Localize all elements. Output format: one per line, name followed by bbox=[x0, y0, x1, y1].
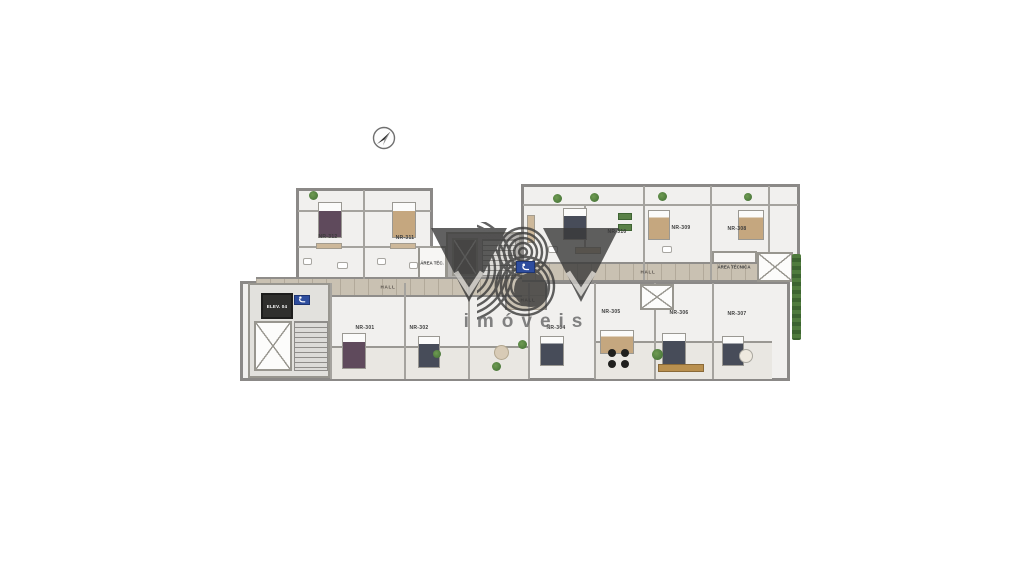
vegetation-strip bbox=[792, 254, 801, 340]
right-wing-divider-1 bbox=[643, 186, 645, 280]
bath-fixture bbox=[303, 258, 312, 265]
bath-fixture bbox=[662, 246, 672, 253]
patio-chair bbox=[608, 360, 616, 368]
brand-watermark-text: imóveis bbox=[464, 311, 591, 333]
unit-label: NR-311 bbox=[396, 235, 415, 241]
left-wing-unit-divider bbox=[363, 190, 365, 279]
dining-chairs bbox=[618, 213, 632, 220]
plant-icon bbox=[433, 350, 441, 358]
patio-chair bbox=[608, 349, 616, 357]
bottom-divider-7 bbox=[712, 283, 714, 379]
plant-icon bbox=[553, 194, 562, 203]
hall-label: HALL bbox=[640, 270, 655, 275]
plant-icon bbox=[590, 193, 599, 202]
bed bbox=[318, 202, 342, 238]
bottom-divider-2 bbox=[404, 283, 406, 379]
bath-fixture bbox=[337, 262, 348, 269]
elevator-04-label: ELEV. 04 bbox=[267, 304, 287, 309]
accessibility-icon bbox=[294, 295, 310, 305]
dresser bbox=[316, 243, 342, 249]
accessibility-icon bbox=[516, 261, 535, 273]
right-wing-divider-2 bbox=[710, 186, 712, 280]
unit-label: NR-306 bbox=[669, 310, 688, 316]
plant-icon bbox=[652, 349, 663, 360]
plant-icon bbox=[658, 192, 667, 201]
area-tecnica-label: ÁREA TÉCNICA bbox=[716, 264, 752, 270]
unit-label: NR-312 bbox=[318, 234, 337, 240]
round-table bbox=[739, 349, 753, 363]
bed bbox=[392, 202, 416, 238]
dresser bbox=[390, 243, 416, 249]
round-rug bbox=[494, 345, 509, 360]
wood-deck bbox=[658, 364, 704, 372]
elevator-04-box: ELEV. 04 bbox=[261, 293, 293, 319]
compass-icon bbox=[371, 125, 397, 151]
mid-elevator-shaft bbox=[640, 284, 674, 310]
bath-fixture bbox=[409, 262, 418, 269]
bed bbox=[738, 210, 764, 240]
floorplan-image: ELEV. 04 NR-312 NR- bbox=[0, 0, 1024, 569]
unit-label: NR-302 bbox=[409, 325, 428, 331]
unit-label: NR-308 bbox=[727, 226, 746, 232]
plant-icon bbox=[744, 193, 752, 201]
patio-chair bbox=[621, 349, 629, 357]
plant-icon bbox=[309, 191, 318, 200]
unit-label: NR-301 bbox=[355, 325, 374, 331]
bottom-divider-1 bbox=[330, 283, 332, 379]
hall-label: HALL bbox=[380, 285, 395, 290]
plant-icon bbox=[518, 340, 527, 349]
plant-icon bbox=[492, 362, 501, 371]
bed bbox=[600, 330, 634, 354]
bed bbox=[540, 336, 564, 366]
unit-label: NR-307 bbox=[727, 311, 746, 317]
core-stairs bbox=[294, 321, 328, 371]
right-elevator-shaft bbox=[757, 252, 793, 282]
core-elevator-shaft bbox=[254, 321, 292, 371]
unit-label: NR-309 bbox=[671, 225, 690, 231]
bed bbox=[662, 333, 686, 365]
bed bbox=[648, 210, 670, 240]
bath-fixture bbox=[377, 258, 386, 265]
right-wing-balcony-rail bbox=[523, 204, 798, 206]
patio-chair bbox=[621, 360, 629, 368]
bed bbox=[342, 333, 366, 369]
